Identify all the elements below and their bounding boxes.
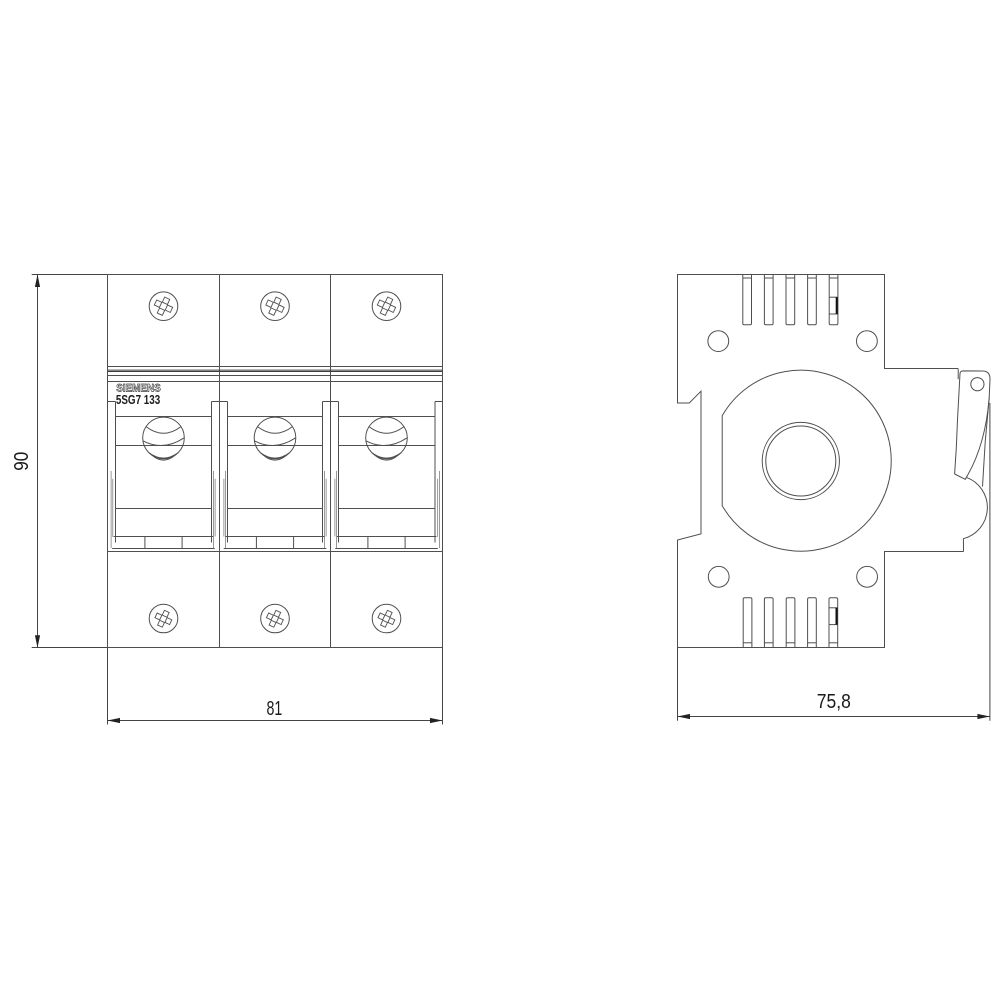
svg-text:90: 90 [11, 452, 33, 471]
svg-text:75,8: 75,8 [817, 691, 851, 713]
svg-text:81: 81 [267, 698, 283, 720]
svg-text:5SG7 133: 5SG7 133 [116, 392, 160, 407]
